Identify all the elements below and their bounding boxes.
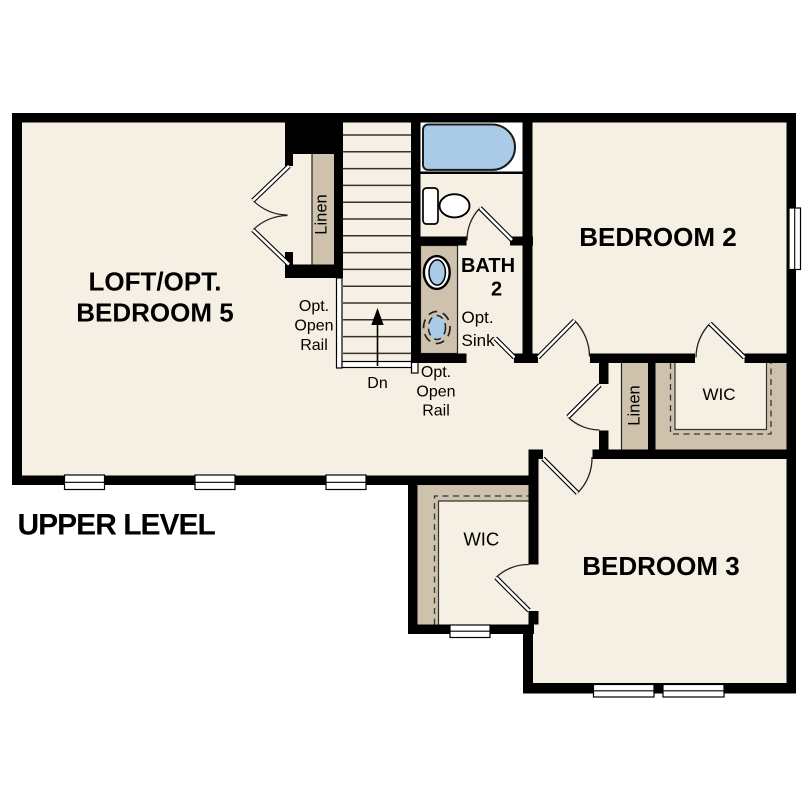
svg-text:Rail: Rail [300, 337, 328, 354]
svg-text:UPPER LEVEL: UPPER LEVEL [18, 509, 216, 542]
svg-text:Opt.: Opt. [299, 298, 329, 315]
svg-text:BATH: BATH [461, 255, 515, 277]
svg-text:Sink: Sink [462, 331, 496, 350]
svg-text:BEDROOM 5: BEDROOM 5 [76, 298, 233, 328]
svg-text:WIC: WIC [702, 385, 735, 404]
svg-text:BEDROOM 3: BEDROOM 3 [582, 551, 739, 581]
svg-text:Linen: Linen [313, 194, 331, 234]
svg-text:Dn: Dn [367, 375, 387, 392]
svg-text:Opt.: Opt. [421, 364, 451, 381]
svg-text:Open: Open [294, 318, 333, 335]
svg-text:Linen: Linen [626, 385, 644, 425]
svg-text:Opt.: Opt. [462, 308, 494, 327]
svg-text:Rail: Rail [422, 403, 450, 420]
svg-text:2: 2 [491, 279, 502, 301]
svg-text:BEDROOM 2: BEDROOM 2 [579, 222, 736, 252]
svg-text:WIC: WIC [463, 529, 499, 550]
svg-text:LOFT/OPT.: LOFT/OPT. [89, 267, 222, 297]
svg-text:Open: Open [416, 384, 455, 401]
